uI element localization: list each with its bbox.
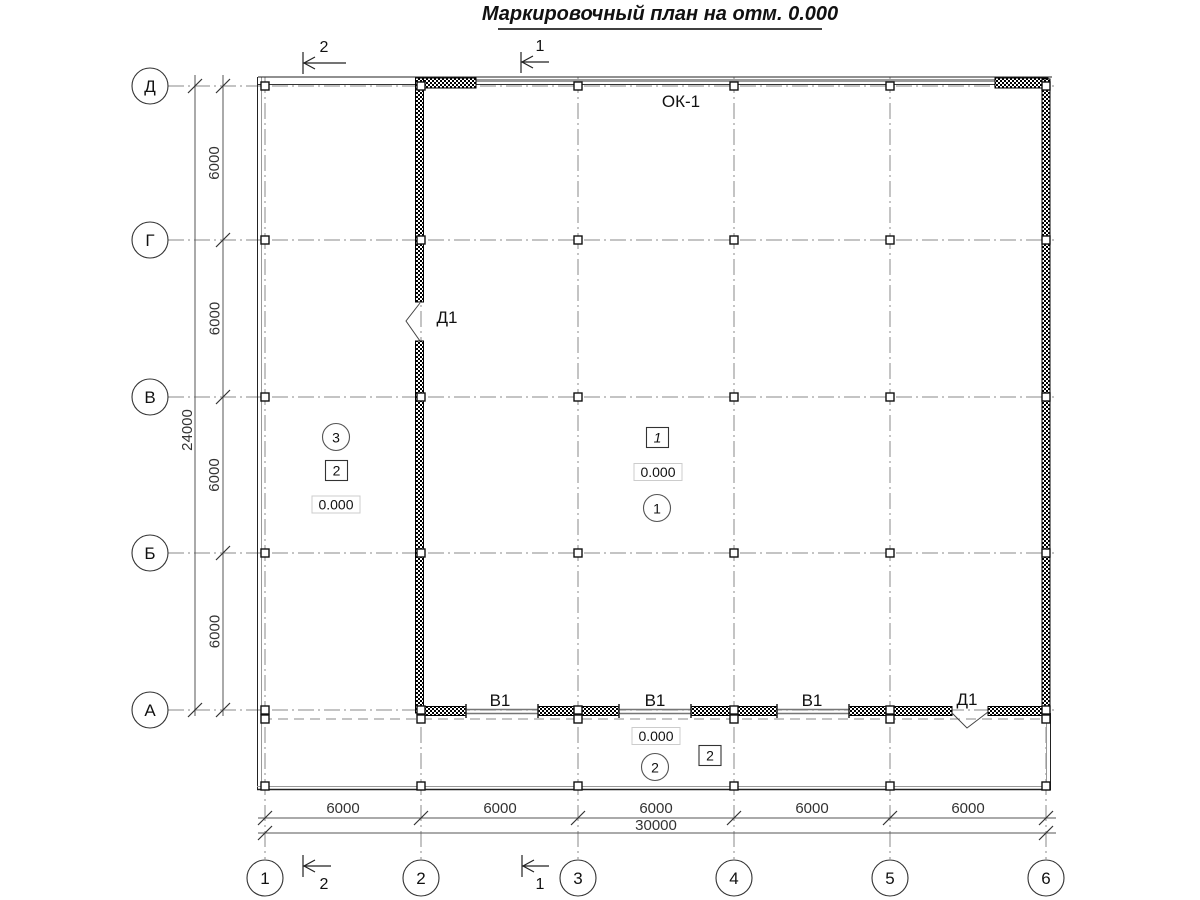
door-swing-bottom [952,712,988,728]
column-marker [417,393,425,401]
column-marker [1042,393,1050,401]
axis-col-6: 6 [1041,869,1050,888]
column-marker [261,82,269,90]
section-top-1: 1 [536,38,545,55]
column-marker [730,549,738,557]
axis-col-2: 2 [416,869,425,888]
room-annex-tag: 2 [706,748,714,764]
room-hall-tag: 1 [654,430,662,446]
column-marker [1042,236,1050,244]
dimension-texts: 6000 6000 6000 6000 24000 6000 6000 6000… [179,146,985,834]
axis-col-4: 4 [729,869,738,888]
axis-col-1: 1 [260,869,269,888]
dim-row-2: 6000 [207,302,224,335]
column-marker [886,782,894,790]
section-bottom-2: 2 [320,876,329,893]
column-marker [1042,782,1050,790]
dim-row-1: 6000 [206,146,223,179]
section-marker-texts: 2 1 2 1 [320,38,545,893]
room-left-tag: 2 [333,463,341,479]
column-marker [574,706,582,714]
section-top-2: 2 [320,39,329,56]
gate-label-2: В1 [645,691,666,710]
column-marker [730,706,738,714]
dim-col-1: 6000 [326,800,359,817]
room-left-elevation: 0.000 [318,497,353,513]
column-marker [261,706,269,714]
dim-col-2: 6000 [483,800,516,817]
dim-col-total: 30000 [635,817,677,834]
column-marker [574,82,582,90]
door-label-bottom: Д1 [957,690,978,709]
axis-col-3: 3 [573,869,582,888]
column-marker [574,782,582,790]
column-marker [730,82,738,90]
room-hall-elevation: 0.000 [640,464,675,480]
column-marker [261,715,269,723]
column-marker [417,82,425,90]
column-marker [730,236,738,244]
dim-col-5: 6000 [951,800,984,817]
gate-label-3: В1 [802,691,823,710]
page-title: Маркировочный план на отм. 0.000 [482,3,838,25]
column-marker [417,715,425,723]
column-marker [730,393,738,401]
column-marker [417,549,425,557]
column-marker [574,393,582,401]
col-axis-bubbles: 1 2 3 4 5 6 [247,860,1064,896]
column-marker [574,549,582,557]
grid-lines [168,77,1054,859]
axis-row-g: Г [145,231,154,250]
column-marker [1042,715,1050,723]
door-swing-wall [406,303,420,341]
room-annex-number: 2 [651,760,659,776]
column-marker [1042,82,1050,90]
dim-row-4: 6000 [207,615,224,648]
door-label-wall: Д1 [437,308,458,327]
row-axis-bubbles: Д Г В Б А [132,68,168,728]
dim-col-3: 6000 [639,800,672,817]
column-marker [886,82,894,90]
floor-plan-drawing: Маркировочный план на отм. 0.000 Д Г В Б… [0,0,1200,900]
column-marker [1042,549,1050,557]
column-marker [886,236,894,244]
dim-row-total: 24000 [179,409,196,451]
column-marker [417,236,425,244]
column-marker [886,393,894,401]
window-label-ok1: ОК-1 [662,92,700,111]
axis-row-d: Д [144,77,156,96]
axis-row-v: В [144,388,155,407]
room-annex-elevation: 0.000 [638,728,673,744]
axis-row-a: А [144,701,156,720]
column-marker [417,782,425,790]
column-marker [574,715,582,723]
column-marker [886,715,894,723]
column-marker [730,715,738,723]
room-marks: 3 2 0.000 1 0.000 1 0.000 2 2 [312,424,721,781]
column-marker [730,782,738,790]
axis-row-b: Б [144,544,155,563]
dim-row-3: 6000 [206,458,223,491]
room-hall-number: 1 [653,501,661,517]
column-marker [261,236,269,244]
column-marker [574,236,582,244]
plan-canvas: Маркировочный план на отм. 0.000 Д Г В Б… [0,0,1200,900]
column-marker [886,549,894,557]
room-left-number: 3 [332,430,340,446]
gate-label-1: В1 [490,691,511,710]
opening-labels: ОК-1 Д1 В1 В1 В1 Д1 [437,92,978,710]
axis-col-5: 5 [885,869,894,888]
column-marker [261,782,269,790]
column-marker [261,393,269,401]
doors-and-gates [406,303,988,728]
dim-col-4: 6000 [795,800,828,817]
column-marker [261,549,269,557]
column-marker [886,706,894,714]
column-marker [1042,706,1050,714]
section-bottom-1: 1 [536,876,545,893]
dimension-ticks [188,79,1053,840]
column-marker [417,706,425,714]
